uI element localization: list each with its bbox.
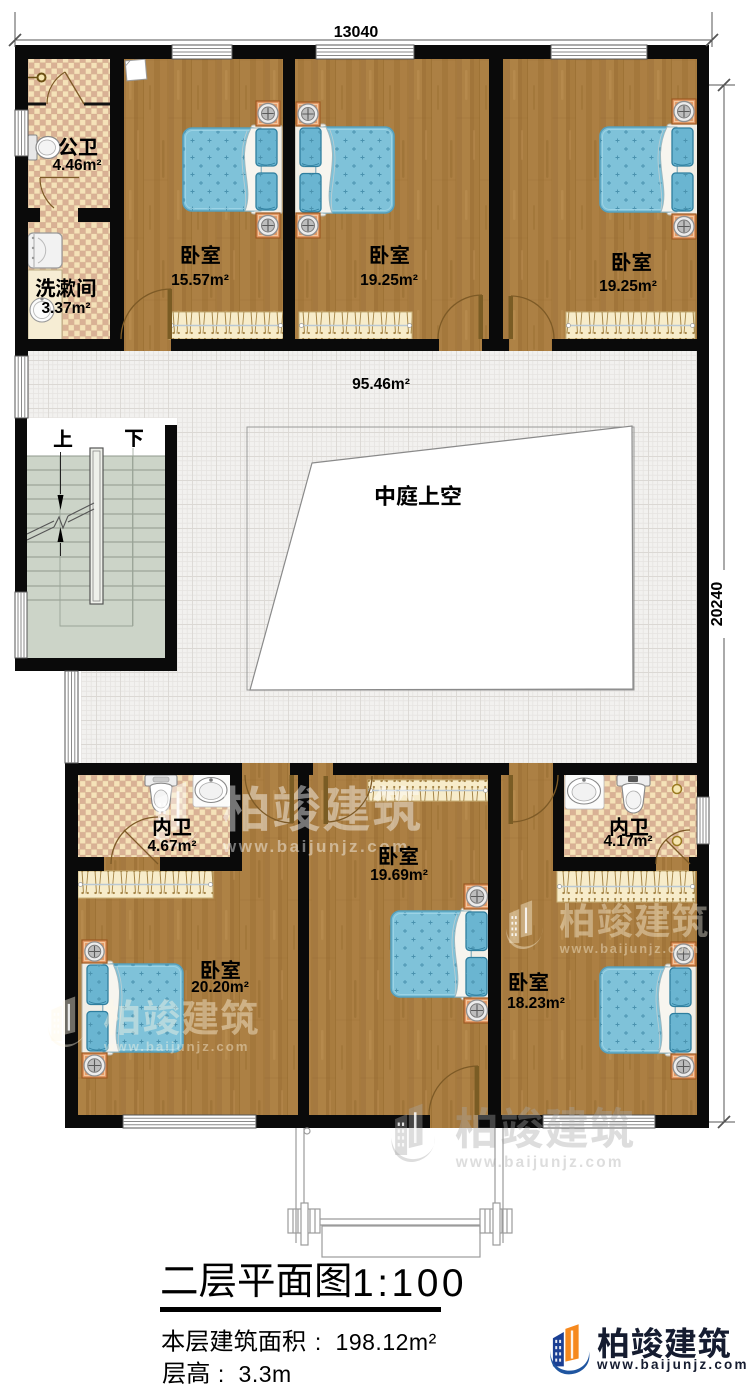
svg-text:4.67m²: 4.67m²	[147, 838, 196, 855]
svg-text:15.57m²: 15.57m²	[171, 272, 229, 289]
svg-text:4.17m²: 4.17m²	[603, 833, 652, 850]
svg-text:19.25m²: 19.25m²	[360, 272, 418, 289]
svg-text:www.baijunjz.com: www.baijunjz.com	[559, 941, 700, 956]
svg-text:19.25m²: 19.25m²	[599, 278, 657, 295]
svg-text:: 198.12m²: : 198.12m²	[308, 1329, 437, 1355]
svg-text:www.baijunjz.com: www.baijunjz.com	[455, 1154, 624, 1171]
svg-text:: 3.3m: : 3.3m	[211, 1361, 292, 1387]
svg-text:20240: 20240	[709, 582, 726, 627]
svg-text:13040: 13040	[334, 24, 379, 41]
svg-text:18.23m²: 18.23m²	[507, 995, 565, 1012]
svg-text:4.46m²: 4.46m²	[52, 157, 101, 174]
svg-text:1:100: 1:100	[352, 1262, 467, 1305]
svg-text:www.baijunjz.com: www.baijunjz.com	[596, 1357, 749, 1372]
svg-text:20.20m²: 20.20m²	[191, 979, 249, 996]
svg-text:3.37m²: 3.37m²	[41, 300, 90, 317]
svg-text:www.baijunjz.com: www.baijunjz.com	[103, 1039, 250, 1054]
svg-text:19.69m²: 19.69m²	[370, 867, 428, 884]
svg-text:95.46m²: 95.46m²	[352, 376, 410, 393]
